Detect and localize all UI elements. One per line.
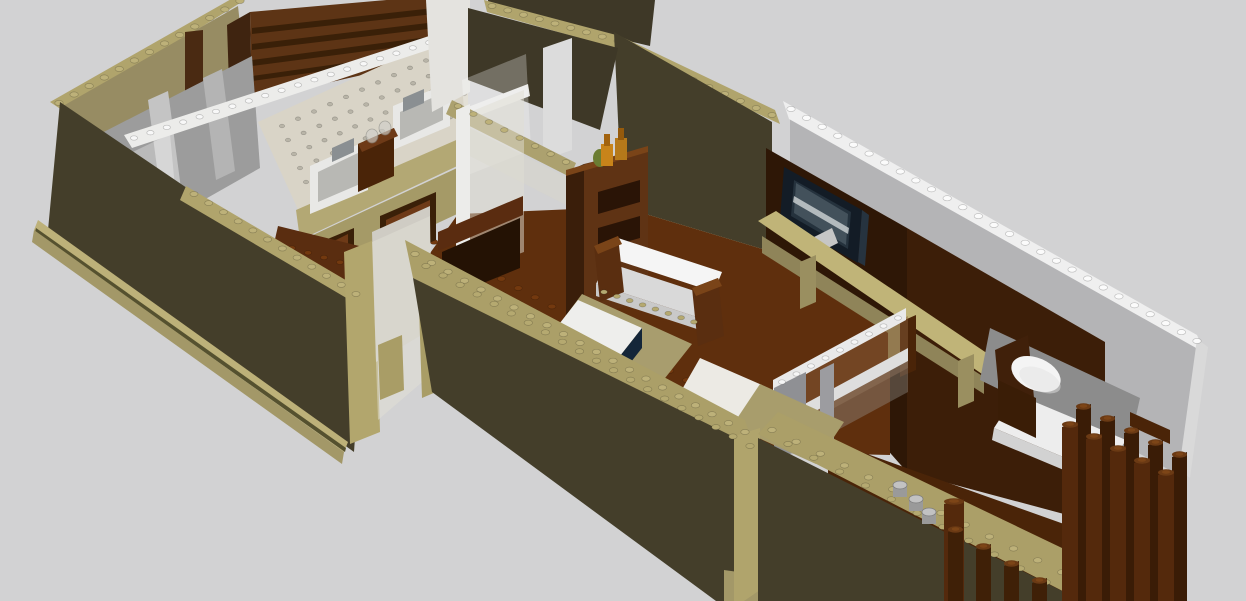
3d-viewport[interactable] (0, 0, 1246, 601)
render-stage (0, 0, 1246, 601)
